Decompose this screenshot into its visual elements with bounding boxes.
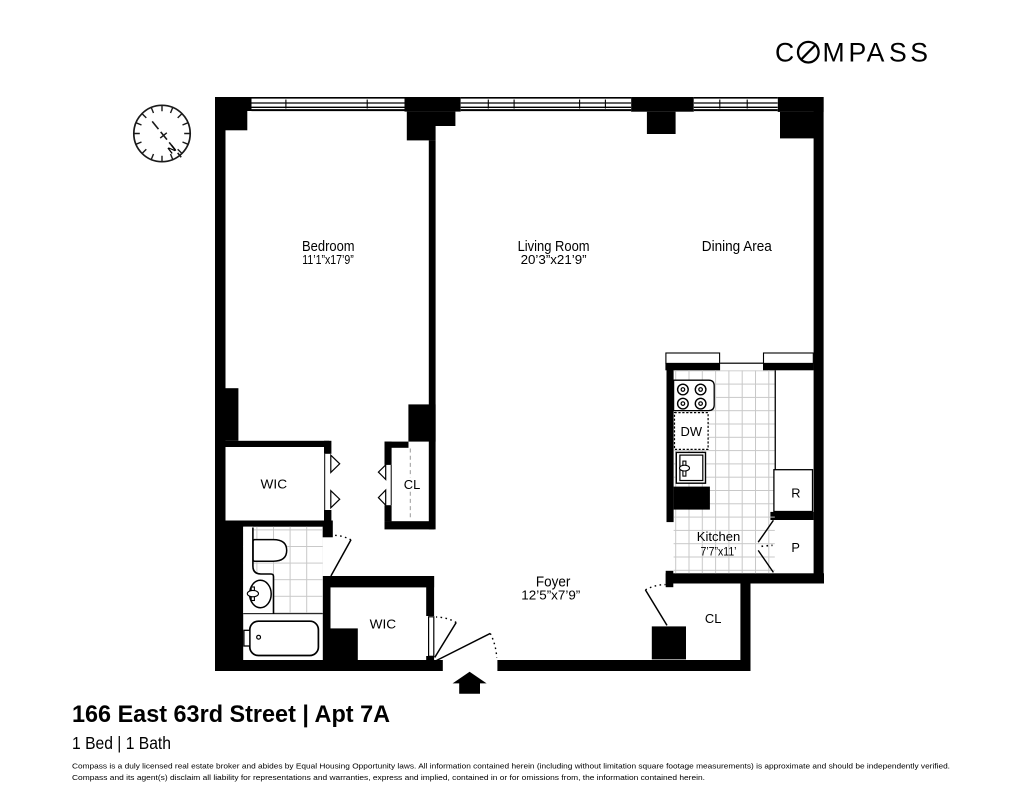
svg-text:C: C xyxy=(775,38,794,68)
svg-text:166 East 63rd Street | Apt 7A: 166 East 63rd Street | Apt 7A xyxy=(72,701,390,728)
svg-text:M: M xyxy=(823,38,845,68)
svg-text:Compass is a duly licensed rea: Compass is a duly licensed real estate b… xyxy=(72,761,950,770)
svg-text:P: P xyxy=(791,540,800,555)
svg-text:12’5”x7’9”: 12’5”x7’9” xyxy=(521,588,580,603)
svg-text:R: R xyxy=(791,486,800,501)
svg-text:CL: CL xyxy=(705,612,722,626)
svg-text:7’7”x11’: 7’7”x11’ xyxy=(701,545,737,559)
svg-text:P: P xyxy=(849,38,867,68)
svg-text:S: S xyxy=(889,38,907,68)
svg-text:CL: CL xyxy=(404,478,421,492)
svg-text:Compass and its agent(s) discl: Compass and its agent(s) disclaim all li… xyxy=(72,773,705,782)
svg-text:WIC: WIC xyxy=(370,618,397,632)
svg-text:DW: DW xyxy=(681,425,703,439)
svg-text:A: A xyxy=(867,38,885,68)
svg-text:Dining Area: Dining Area xyxy=(702,239,773,255)
svg-text:20’3”x21’9”: 20’3”x21’9” xyxy=(521,252,587,267)
svg-text:11’1”x17’9”: 11’1”x17’9” xyxy=(302,252,354,267)
svg-text:S: S xyxy=(910,38,928,68)
svg-text:Kitchen: Kitchen xyxy=(697,530,741,544)
svg-text:1 Bed | 1 Bath: 1 Bed | 1 Bath xyxy=(72,733,171,753)
svg-text:WIC: WIC xyxy=(261,477,288,491)
